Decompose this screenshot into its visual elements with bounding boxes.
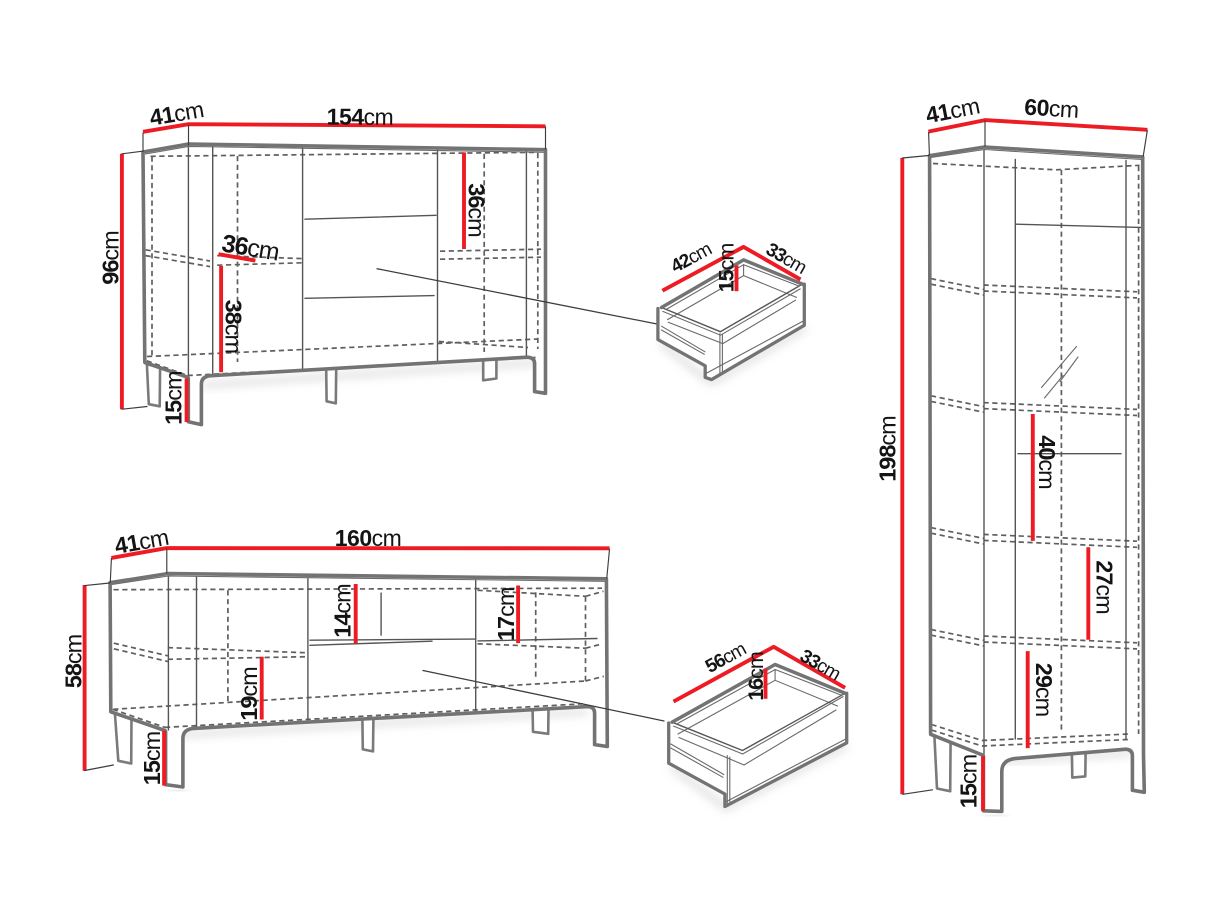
svg-text:40cm: 40cm (1034, 435, 1060, 489)
svg-text:14cm: 14cm (330, 584, 356, 638)
svg-text:60cm: 60cm (1024, 94, 1080, 123)
svg-text:29cm: 29cm (1031, 663, 1057, 717)
svg-text:58cm: 58cm (61, 634, 87, 688)
svg-text:16cm: 16cm (744, 652, 768, 701)
svg-text:198cm: 198cm (875, 416, 901, 482)
svg-text:15cm: 15cm (714, 244, 738, 293)
svg-text:27cm: 27cm (1091, 560, 1117, 614)
svg-text:15cm: 15cm (956, 754, 982, 808)
svg-text:160cm: 160cm (335, 525, 402, 551)
svg-text:15cm: 15cm (139, 731, 165, 785)
svg-text:17cm: 17cm (493, 587, 519, 641)
svg-text:15cm: 15cm (161, 371, 187, 425)
svg-text:96cm: 96cm (98, 231, 124, 285)
svg-text:19cm: 19cm (236, 667, 262, 721)
svg-text:36cm: 36cm (463, 183, 489, 237)
svg-text:38cm: 38cm (220, 300, 246, 354)
svg-text:154cm: 154cm (327, 103, 394, 129)
